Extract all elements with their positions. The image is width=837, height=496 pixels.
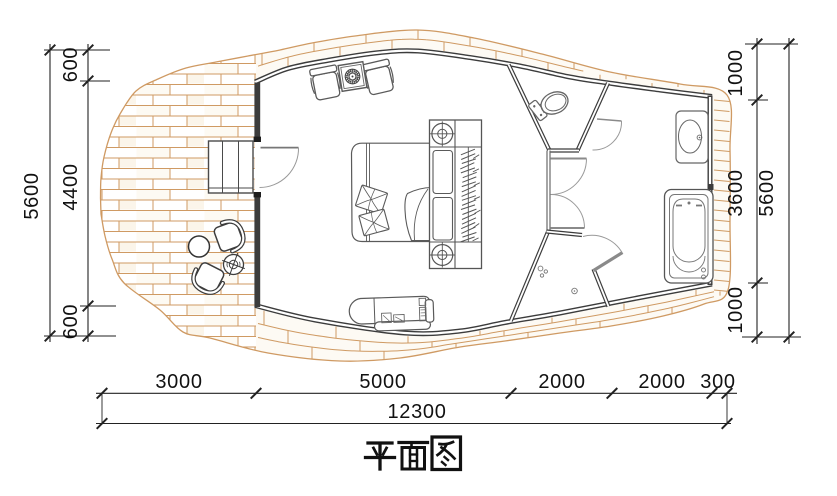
svg-text:2000: 2000 xyxy=(538,371,585,393)
svg-text:4400: 4400 xyxy=(60,163,82,210)
svg-text:12300: 12300 xyxy=(387,401,446,423)
svg-text:600: 600 xyxy=(60,47,82,82)
svg-text:5600: 5600 xyxy=(21,172,43,219)
svg-text:5000: 5000 xyxy=(359,371,406,393)
svg-text:3600: 3600 xyxy=(725,169,747,216)
svg-text:2000: 2000 xyxy=(638,371,685,393)
svg-text:300: 300 xyxy=(700,371,735,393)
svg-text:1000: 1000 xyxy=(725,49,747,96)
svg-text:3000: 3000 xyxy=(155,371,202,393)
svg-text:1000: 1000 xyxy=(725,286,747,333)
svg-text:600: 600 xyxy=(60,304,82,339)
svg-text:5600: 5600 xyxy=(756,169,778,216)
